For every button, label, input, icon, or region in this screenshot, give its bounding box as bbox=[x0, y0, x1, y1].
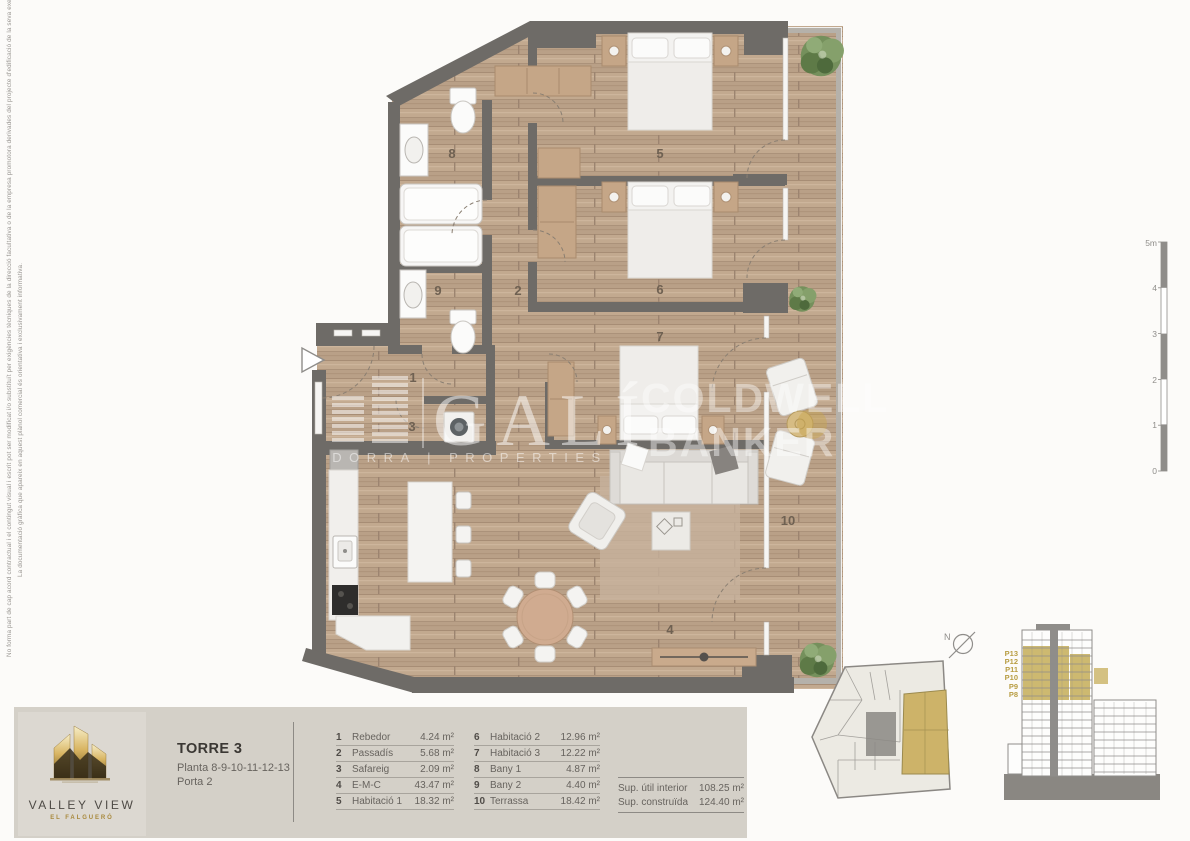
legend-area: 18.42 m² bbox=[561, 796, 600, 807]
legend-column-2: 6Habitació 212.96 m² 7Habitació 312.22 m… bbox=[474, 730, 600, 810]
legend-name: Bany 1 bbox=[490, 764, 566, 775]
room-label-habitacio2: 6 bbox=[656, 282, 663, 297]
legend-area: 18.32 m² bbox=[415, 796, 454, 807]
scale-bar: 5m 4 3 2 1 0 bbox=[1145, 238, 1167, 476]
title-divider bbox=[293, 722, 294, 822]
legend-row: 8Bany 14.87 m² bbox=[474, 762, 600, 778]
north-arrow: N bbox=[944, 632, 975, 658]
legend-area: 43.47 m² bbox=[415, 780, 454, 791]
legend-row: 6Habitació 212.96 m² bbox=[474, 730, 600, 746]
room-label-habitacio1: 5 bbox=[656, 146, 663, 161]
total-value: 124.40 m² bbox=[699, 797, 744, 808]
total-row: Sup. útil interior 108.25 m² bbox=[618, 781, 744, 795]
legend-area: 2.09 m² bbox=[420, 764, 454, 775]
legend-row: 7Habitació 312.22 m² bbox=[474, 746, 600, 762]
title-block: TORRE 3 Planta 8-9-10-11-12-13 Porta 2 bbox=[177, 741, 290, 789]
valley-view-towers-icon bbox=[48, 720, 116, 784]
total-label: Sup. construïda bbox=[618, 797, 688, 808]
total-value: 108.25 m² bbox=[699, 783, 744, 794]
legend-name: Passadís bbox=[352, 748, 420, 759]
valley-view-logo: VALLEY VIEW EL FALGUERÓ bbox=[18, 712, 146, 836]
legend-area: 4.87 m² bbox=[566, 764, 600, 775]
floor-label-p8: P8 bbox=[1009, 690, 1018, 699]
legend-area: 5.68 m² bbox=[420, 748, 454, 759]
room-label-habitacio3: 7 bbox=[656, 329, 663, 344]
coffee-table bbox=[652, 512, 690, 550]
legend-area: 4.40 m² bbox=[566, 780, 600, 791]
scale-label-4: 4 bbox=[1152, 283, 1157, 293]
tower-title: TORRE 3 bbox=[177, 741, 290, 757]
legend-row: 4E-M-C43.47 m² bbox=[336, 778, 454, 794]
legend-name: Habitació 1 bbox=[352, 796, 415, 807]
legend-num: 4 bbox=[336, 780, 352, 791]
scale-label-3: 3 bbox=[1152, 329, 1157, 339]
legend-name: Habitació 2 bbox=[490, 732, 561, 743]
logo-subtitle: EL FALGUERÓ bbox=[18, 815, 146, 821]
legend-row: 9Bany 24.40 m² bbox=[474, 778, 600, 794]
legend-row: 1Rebedor4.24 m² bbox=[336, 730, 454, 746]
legend-name: Habitació 3 bbox=[490, 748, 561, 759]
legend-area: 4.24 m² bbox=[420, 732, 454, 743]
scale-label-5m: 5m bbox=[1145, 238, 1157, 248]
legend-num: 7 bbox=[474, 748, 490, 759]
plan-sheet: 1 2 3 4 5 6 7 8 9 10 GALÍ DORRA | PROPER… bbox=[0, 0, 1190, 841]
floor-subtitle: Planta 8-9-10-11-12-13 bbox=[177, 761, 290, 775]
legal-disclaimer-1: No forma part de cap acord contractual i… bbox=[6, 47, 13, 657]
room-label-bany2: 9 bbox=[434, 283, 441, 298]
legend-row: 10Terrassa18.42 m² bbox=[474, 794, 600, 810]
legend-num: 2 bbox=[336, 748, 352, 759]
legend-name: Rebedor bbox=[352, 732, 420, 743]
room-label-emc: 4 bbox=[666, 622, 674, 637]
building-elevation: P13 P12 P11 P10 P9 P8 bbox=[1004, 624, 1160, 800]
room-label-terrassa: 10 bbox=[781, 513, 795, 528]
room-label-passadis: 2 bbox=[514, 283, 521, 298]
scale-label-2: 2 bbox=[1152, 375, 1157, 385]
floor-label-p10: P10 bbox=[1005, 673, 1018, 682]
legend-num: 9 bbox=[474, 780, 490, 791]
door-subtitle: Porta 2 bbox=[177, 775, 290, 789]
key-plan-highlighted-unit bbox=[902, 690, 949, 774]
room-label-safareig: 3 bbox=[408, 419, 415, 434]
legend-name: Terrassa bbox=[490, 796, 561, 807]
legal-disclaimer-2: La documentació gràfica que apareix en a… bbox=[17, 47, 24, 577]
scale-label-0: 0 bbox=[1152, 466, 1157, 476]
legend-row: 2Passadís5.68 m² bbox=[336, 746, 454, 762]
legend-num: 3 bbox=[336, 764, 352, 775]
legend-column-1: 1Rebedor4.24 m² 2Passadís5.68 m² 3Safare… bbox=[336, 730, 454, 810]
total-label: Sup. útil interior bbox=[618, 783, 687, 794]
legend-num: 1 bbox=[336, 732, 352, 743]
legend-name: E-M-C bbox=[352, 780, 415, 791]
watermark-brand-sub: DORRA | PROPERTIES bbox=[332, 450, 607, 465]
legend-area: 12.96 m² bbox=[561, 732, 600, 743]
legend-area: 12.22 m² bbox=[561, 748, 600, 759]
scale-label-1: 1 bbox=[1152, 420, 1157, 430]
legend-num: 5 bbox=[336, 796, 352, 807]
room-label-bany1: 8 bbox=[448, 146, 455, 161]
legend-row: 5Habitació 118.32 m² bbox=[336, 794, 454, 810]
legend-name: Bany 2 bbox=[490, 780, 566, 791]
north-label: N bbox=[944, 632, 951, 642]
watermark-coldwell-banker: COLDWELL BANKER bbox=[641, 375, 889, 465]
legend-row: 3Safareig2.09 m² bbox=[336, 762, 454, 778]
total-row: Sup. construïda 124.40 m² bbox=[618, 795, 744, 809]
legend-num: 8 bbox=[474, 764, 490, 775]
legend-name: Safareig bbox=[352, 764, 420, 775]
legend-num: 10 bbox=[474, 796, 490, 807]
room-label-rebedor: 1 bbox=[409, 370, 416, 385]
surface-totals: Sup. útil interior 108.25 m² Sup. constr… bbox=[618, 777, 744, 813]
tv-console bbox=[652, 648, 756, 666]
watermark-coldwell: COLDWELL bbox=[641, 375, 889, 421]
legend-num: 6 bbox=[474, 732, 490, 743]
logo-title: VALLEY VIEW bbox=[18, 798, 146, 812]
watermark-banker: BANKER bbox=[648, 419, 835, 465]
